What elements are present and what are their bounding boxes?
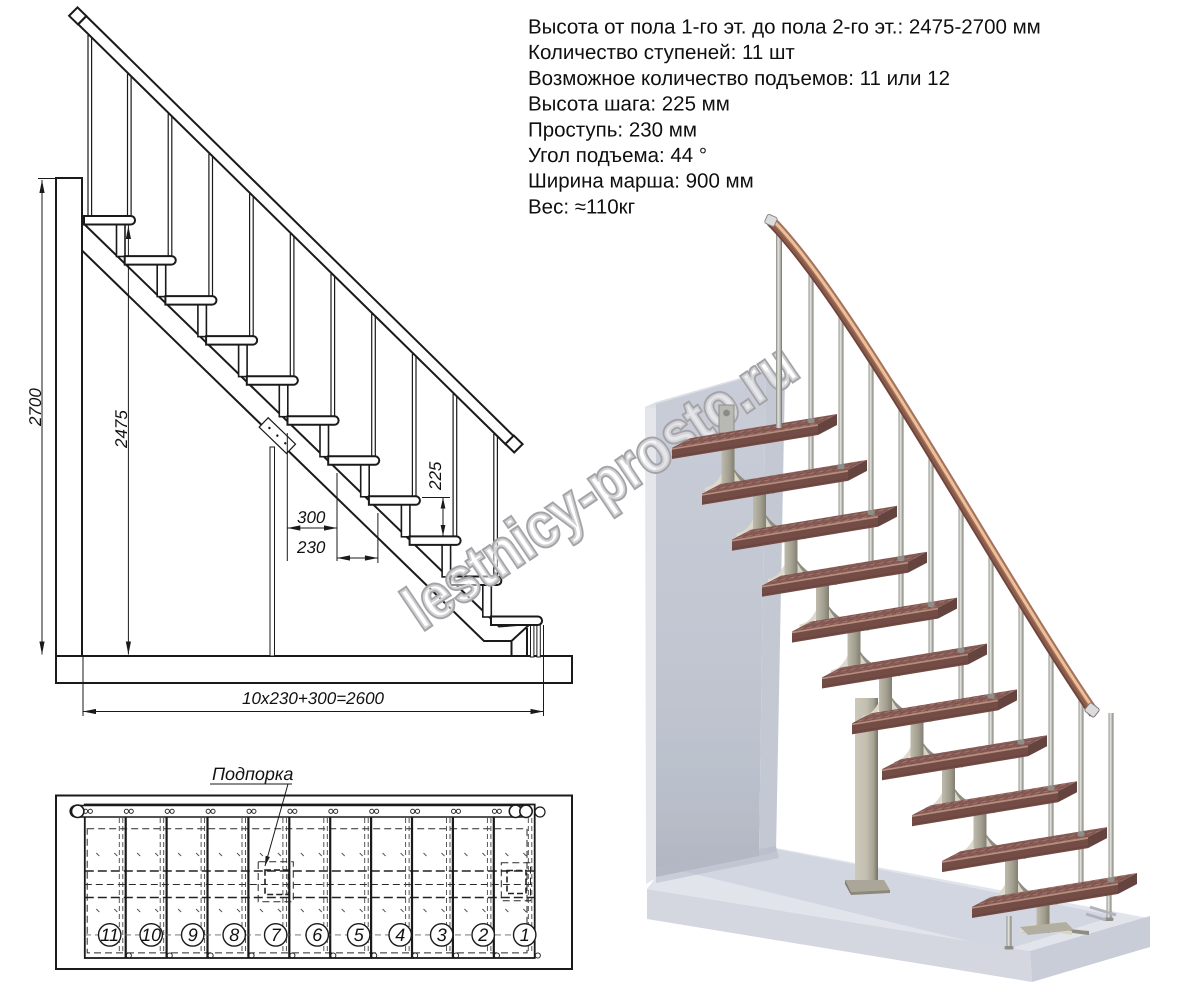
svg-text:4: 4 bbox=[395, 925, 405, 945]
svg-text:11: 11 bbox=[100, 925, 119, 945]
svg-text:225: 225 bbox=[426, 461, 445, 491]
svg-text:Проступь: 230 мм: Проступь: 230 мм bbox=[528, 118, 697, 141]
svg-text:2475: 2475 bbox=[112, 410, 131, 449]
svg-text:Высота шага: 225 мм: Высота шага: 225 мм bbox=[528, 93, 730, 116]
svg-text:300: 300 bbox=[297, 508, 326, 527]
svg-text:Высота от пола 1-го эт. до пол: Высота от пола 1-го эт. до пола 2-го эт.… bbox=[528, 16, 1041, 39]
svg-text:Возможное количество подъемов:: Возможное количество подъемов: 11 или 12 bbox=[528, 67, 950, 90]
svg-text:9: 9 bbox=[188, 925, 198, 945]
svg-text:10x230+300=2600: 10x230+300=2600 bbox=[242, 689, 385, 708]
svg-text:Количество ступеней: 11 шт: Количество ступеней: 11 шт bbox=[528, 41, 795, 64]
svg-text:3: 3 bbox=[437, 925, 447, 945]
svg-text:2700: 2700 bbox=[26, 388, 45, 427]
svg-text:Подпорка: Подпорка bbox=[212, 764, 293, 784]
svg-text:5: 5 bbox=[354, 925, 365, 945]
svg-text:10: 10 bbox=[141, 925, 161, 945]
svg-text:Вес: ≈110кг: Вес: ≈110кг bbox=[528, 195, 635, 218]
svg-text:6: 6 bbox=[312, 925, 323, 945]
svg-text:230: 230 bbox=[296, 538, 326, 557]
svg-text:1: 1 bbox=[520, 925, 530, 945]
svg-text:7: 7 bbox=[271, 925, 282, 945]
svg-text:2: 2 bbox=[477, 925, 488, 945]
svg-text:Угол подъема: 44 °: Угол подъема: 44 ° bbox=[528, 144, 707, 167]
svg-text:8: 8 bbox=[229, 925, 239, 945]
svg-text:Ширина марша: 900 мм: Ширина марша: 900 мм bbox=[528, 170, 754, 193]
